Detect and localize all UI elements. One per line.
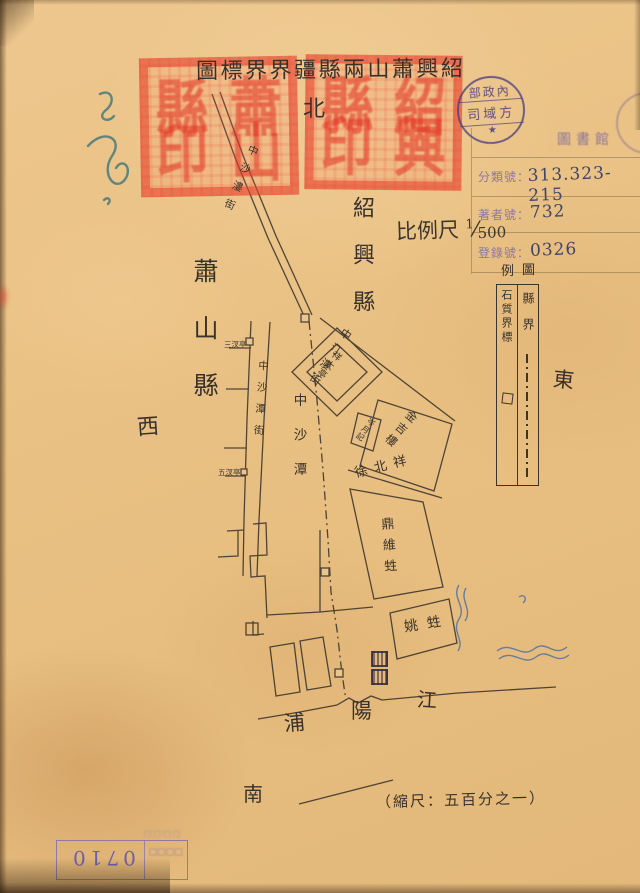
compass-north-label: 北: [303, 99, 325, 121]
seal-character: 印: [320, 96, 373, 189]
legend-box: 例 圖 石質界標 縣界: [496, 262, 540, 488]
library-catalog-label: 圖書館 分類號： 313.323-215 著者號： 732 登錄號： 0326: [471, 128, 640, 274]
compass-south-label: 南: [243, 784, 263, 804]
printed-scale-note: （縮尺：五百分之一）: [376, 791, 546, 810]
label-rule: [472, 157, 640, 158]
legend-stone-marker-label: 石質界標: [501, 289, 512, 345]
mini-seal-upper: [371, 651, 388, 667]
paper-edge-right: [634, 0, 640, 130]
county-shaoxing-label: 紹興縣: [350, 196, 372, 337]
mini-seal-stamp: [371, 651, 388, 685]
marker-note-top: 三汊亭: [224, 341, 247, 349]
red-ink-smudge: [0, 283, 10, 311]
paper-edge-left: [0, 0, 7, 893]
paper-corner-topleft: [0, 0, 34, 46]
label-rule: [472, 196, 640, 197]
stamp-illegible-text: □□□□: [147, 844, 183, 858]
paper-corner-bottomleft: [0, 858, 170, 893]
scale-denominator: 500: [477, 223, 506, 242]
river-char-yang: 陽: [351, 701, 372, 722]
seal-character: 印: [155, 103, 209, 196]
mini-seal-lower: [371, 669, 388, 685]
map-title: 圖標界界疆縣兩山蕭興紹: [196, 59, 466, 84]
compass-east-label: 東: [552, 369, 575, 392]
county-xiaoshan-label: 蕭山縣: [192, 258, 217, 429]
boundary-road-label: 中沙潭: [291, 393, 305, 497]
marker-note-bottom: 五汊亭: [218, 469, 241, 477]
handwritten-scale: 比例尺 1⁄500: [396, 217, 507, 244]
library-header: 圖書館: [557, 133, 614, 147]
compass-west-label: 西: [136, 416, 159, 439]
legend-county-boundary-label: 縣界: [522, 292, 534, 344]
paper-edge-top: [0, 0, 640, 5]
scale-label: 比例尺: [396, 218, 460, 244]
legend-title-left: 例: [501, 265, 514, 278]
stream-lines: [456, 585, 569, 660]
field-name: 分類號：: [478, 168, 530, 185]
river-char-jiang: 江: [416, 689, 437, 710]
legend-square-symbol: [501, 392, 513, 404]
scanned-boundary-map: 蕭 山 縣 印 紹 興 縣 印 圖標界界疆縣兩山蕭興紹 北 西 東 南 蕭山縣 …: [0, 0, 640, 893]
legend-column-divider: [517, 284, 518, 486]
field-value: 0326: [530, 239, 578, 261]
field-value: 732: [530, 201, 566, 222]
legend-dash-dot-symbol: [526, 354, 528, 479]
green-ink-signature: [70, 88, 142, 213]
field-name: 登錄號：: [478, 244, 530, 261]
river-char-pu: 浦: [283, 712, 306, 735]
legend-title-right: 圖: [522, 264, 535, 277]
bottom-stamp-toprow: □□□□: [60, 831, 180, 839]
field-value: 313.323-215: [527, 162, 640, 206]
seal-character: 興: [393, 97, 446, 190]
